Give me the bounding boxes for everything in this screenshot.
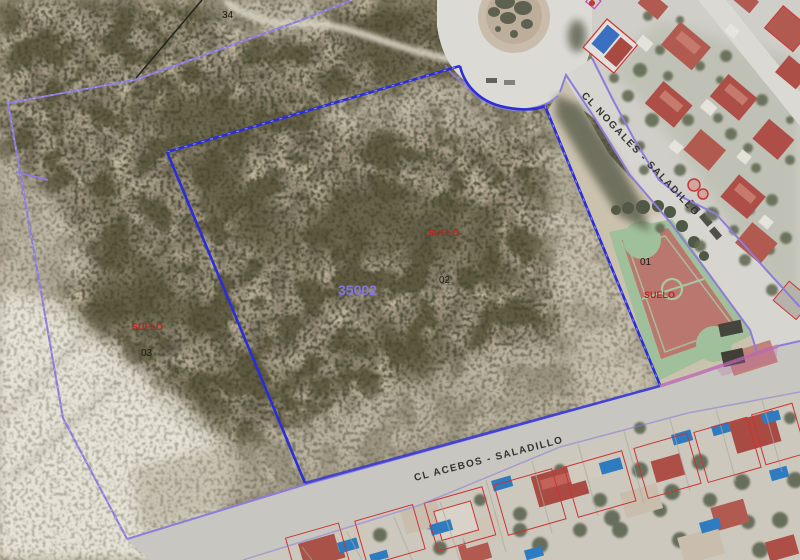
svg-text:34: 34 [222,10,234,21]
svg-text:03: 03 [141,348,153,359]
svg-text:SUELO: SUELO [644,290,675,300]
svg-text:02: 02 [439,275,451,286]
svg-text:01: 01 [640,257,652,268]
svg-text:35002: 35002 [338,282,377,298]
svg-text:SUELO: SUELO [428,228,459,238]
svg-text:SUELO: SUELO [132,322,163,332]
